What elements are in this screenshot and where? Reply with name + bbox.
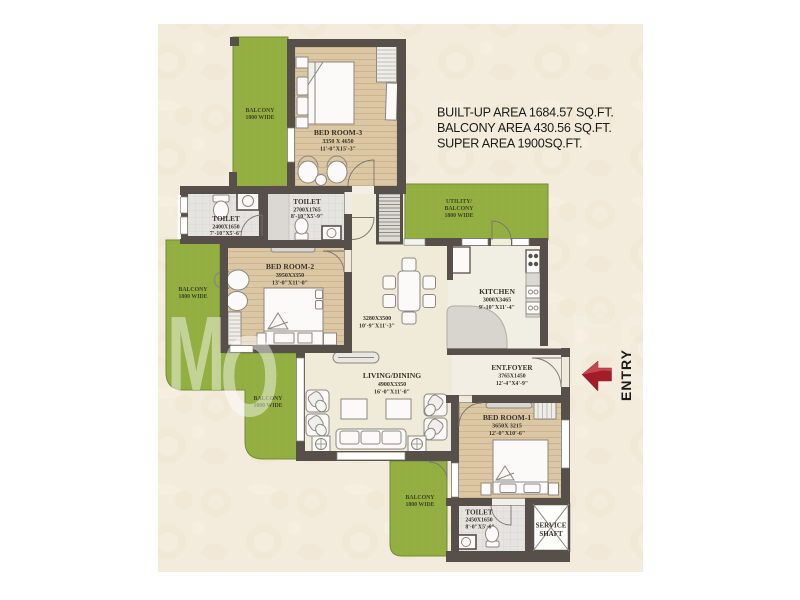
svg-text:4900X3350: 4900X3350 [378,382,406,388]
svg-text:1800 WIDE: 1800 WIDE [444,213,473,219]
svg-text:8'-0"X5'-6": 8'-0"X5'-6" [465,525,494,531]
svg-text:TOILET: TOILET [465,509,493,517]
svg-text:7'-10"X5'-6": 7'-10"X5'-6" [210,231,242,237]
svg-text:KITCHEN: KITCHEN [479,287,515,296]
svg-text:3950X3350: 3950X3350 [276,273,304,279]
svg-text:BALCONY: BALCONY [246,108,276,114]
svg-text:10'-9"X11'-3": 10'-9"X11'-3" [359,324,395,330]
svg-text:BALCONY: BALCONY [179,287,209,293]
svg-text:11'-0"X15'-3": 11'-0"X15'-3" [320,147,356,153]
svg-text:3280X3500: 3280X3500 [363,316,391,322]
svg-text:BED ROOM-3: BED ROOM-3 [314,128,363,137]
svg-text:LIVING/DINING: LIVING/DINING [363,371,421,380]
svg-text:3650X 3215: 3650X 3215 [492,424,522,430]
svg-text:ES: ES [569,294,666,406]
svg-text:TOILET: TOILET [293,198,321,206]
svg-text:12'-4"X4'-9": 12'-4"X4'-9" [496,381,528,387]
svg-text:BED ROOM-2: BED ROOM-2 [266,262,315,271]
svg-text:2400X1650: 2400X1650 [212,225,239,231]
svg-text:2450X1650: 2450X1650 [465,518,492,524]
svg-text:O: O [220,312,279,440]
svg-text:ENT.FOYER: ENT.FOYER [491,364,533,372]
svg-text:16'-0"X11'-0": 16'-0"X11'-0" [374,390,410,396]
svg-text:BED ROOM-1: BED ROOM-1 [483,413,532,422]
svg-text:12'-0"X10'-6": 12'-0"X10'-6" [489,431,525,437]
svg-text:3000X3465: 3000X3465 [483,298,511,304]
svg-text:M: M [167,296,226,414]
svg-text:3765X1450: 3765X1450 [498,374,525,380]
svg-text:SUPER AREA 1900SQ.FT.: SUPER AREA 1900SQ.FT. [437,137,582,151]
svg-text:SHAFT: SHAFT [539,530,563,538]
svg-text:13'-0"X11'-0": 13'-0"X11'-0" [272,281,308,287]
svg-text:8'-10"X5'-9": 8'-10"X5'-9" [291,214,323,220]
svg-text:UTILITY/: UTILITY/ [446,199,472,205]
svg-text:SERVICE: SERVICE [536,522,567,530]
svg-text:BALCONY: BALCONY [406,495,436,501]
svg-text:3350 X 4650: 3350 X 4650 [322,139,353,145]
svg-text:1800 WIDE: 1800 WIDE [245,115,274,121]
svg-text:BALCONY AREA 430.56 SQ.FT.: BALCONY AREA 430.56 SQ.FT. [437,121,612,135]
svg-text:BALCONY: BALCONY [445,206,475,212]
svg-text:ENTRY: ENTRY [618,349,634,401]
svg-text:2700X1765: 2700X1765 [293,208,320,214]
svg-text:BUILT-UP AREA 1684.57 SQ.FT.: BUILT-UP AREA 1684.57 SQ.FT. [437,106,614,120]
svg-text:1800 WIDE: 1800 WIDE [405,502,434,508]
svg-text:9'-10"X11'-4": 9'-10"X11'-4" [479,305,515,311]
svg-text:TOILET: TOILET [212,215,240,223]
